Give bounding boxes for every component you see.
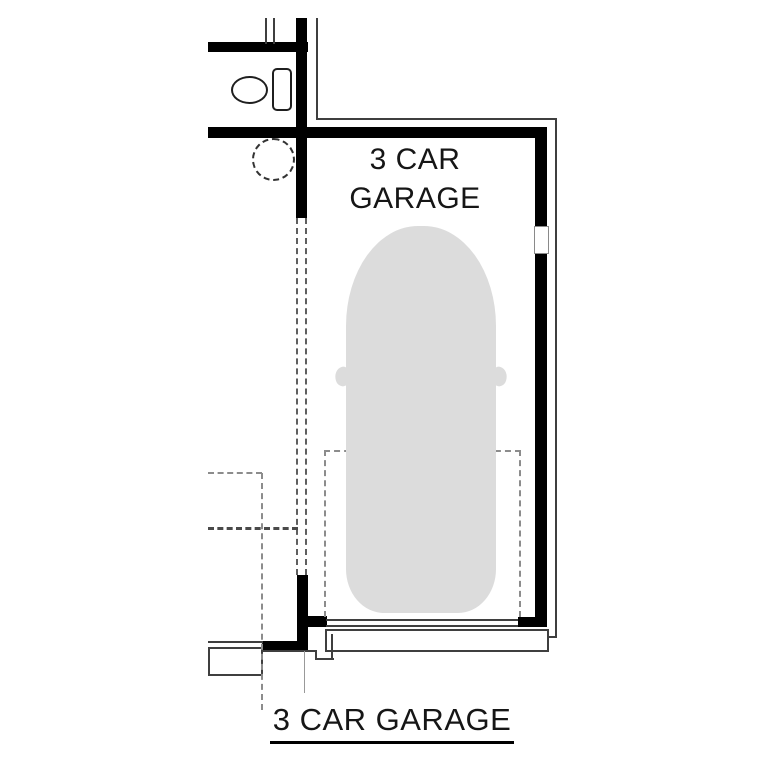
wall-bathroom-top: [208, 42, 308, 52]
wall-right: [535, 127, 547, 627]
wall-dashed-left-outer: [296, 218, 298, 575]
vent-line-2: [273, 18, 275, 44]
toilet-tank-icon: [272, 68, 292, 111]
garage-room-label: 3 CAR GARAGE: [330, 140, 500, 218]
apron-step-right: [549, 636, 557, 638]
plan-caption: 3 CAR GARAGE: [242, 702, 542, 744]
wall-garage-door-left-block: [304, 616, 327, 627]
wall-garage-top: [208, 127, 547, 138]
car-icon: [346, 226, 496, 613]
garage-door-line-1: [326, 619, 518, 621]
step-line-4: [331, 634, 333, 660]
wall-bottom-right-corner: [518, 617, 547, 627]
garage-room-label-line1: 3 CAR: [330, 140, 500, 179]
eave-line-top: [316, 118, 557, 120]
driveway-apron: [325, 629, 549, 652]
dashed-line-horizontal-lower: [208, 527, 298, 530]
ground-line: [304, 651, 305, 693]
dashed-line-vertical-left: [261, 473, 263, 710]
window-right-wall: [534, 226, 549, 254]
stoop-top-line: [208, 641, 263, 643]
garage-room-label-line2: GARAGE: [330, 179, 500, 218]
vent-line-1: [265, 18, 267, 44]
dashed-line-horizontal-upper: [208, 472, 262, 474]
wall-left-upper: [296, 18, 307, 218]
wall-left-lower: [297, 575, 308, 651]
wall-dashed-left-inner: [305, 218, 307, 575]
eave-line-right: [555, 118, 557, 638]
plan-caption-text: 3 CAR GARAGE: [270, 702, 515, 744]
entry-stoop: [208, 647, 263, 676]
toilet-bowl-icon: [231, 76, 268, 104]
column-dashed-circle-icon: [252, 138, 295, 181]
floor-plan: 3 CAR GARAGE 3 CAR GARAGE: [0, 0, 768, 768]
eave-line-left: [316, 18, 318, 120]
garage-door-line-2: [326, 625, 518, 627]
step-line-1: [263, 650, 317, 652]
